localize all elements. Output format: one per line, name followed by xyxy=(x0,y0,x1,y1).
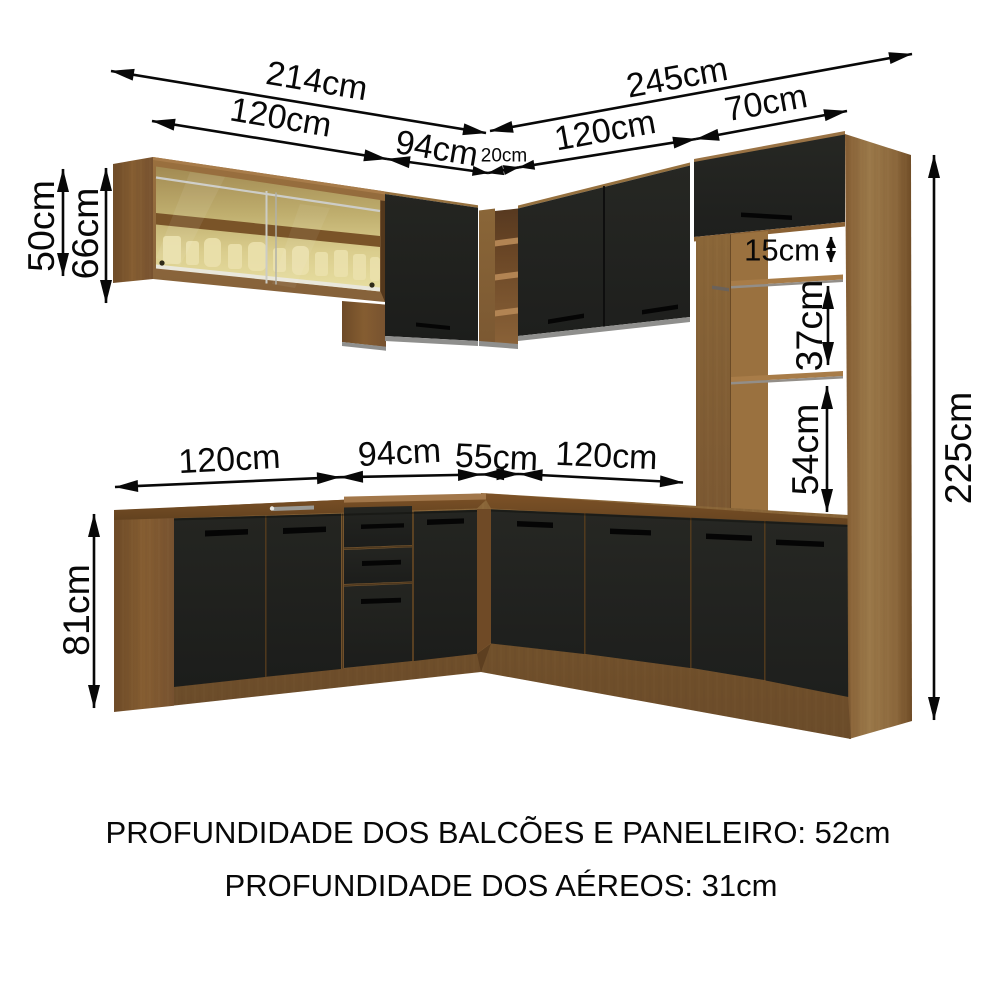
svg-text:55cm: 55cm xyxy=(454,437,539,479)
svg-text:120cm: 120cm xyxy=(177,438,281,481)
svg-text:37cm: 37cm xyxy=(788,280,830,372)
svg-text:20cm: 20cm xyxy=(481,146,527,167)
svg-text:54cm: 54cm xyxy=(784,404,826,496)
svg-text:94cm: 94cm xyxy=(357,432,442,474)
svg-text:66cm: 66cm xyxy=(64,188,106,280)
svg-text:120cm: 120cm xyxy=(555,435,659,477)
svg-text:PROFUNDIDADE DOS BALCÕES E PAN: PROFUNDIDADE DOS BALCÕES E PANELEIRO: 52… xyxy=(106,815,891,850)
svg-text:15cm: 15cm xyxy=(744,233,820,268)
svg-text:50cm: 50cm xyxy=(20,180,62,272)
svg-text:120cm: 120cm xyxy=(551,103,658,159)
svg-text:225cm: 225cm xyxy=(937,392,979,505)
svg-text:81cm: 81cm xyxy=(55,564,97,656)
svg-text:PROFUNDIDADE DOS AÉREOS: 31cm: PROFUNDIDADE DOS AÉREOS: 31cm xyxy=(225,868,778,903)
